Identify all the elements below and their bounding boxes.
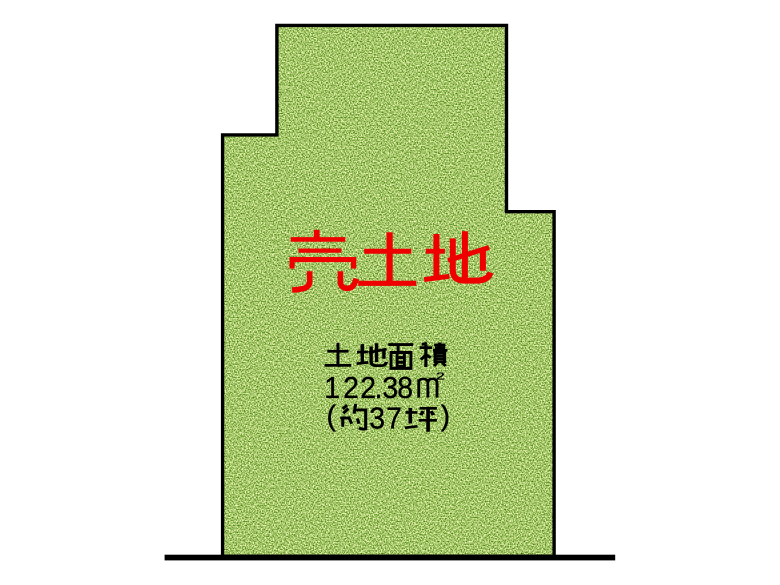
svg-text:3: 3 [369, 402, 385, 436]
svg-text:): ) [441, 401, 450, 433]
svg-text:.: . [375, 371, 383, 405]
svg-text:3: 3 [382, 371, 398, 405]
svg-text:(: ( [327, 401, 337, 433]
svg-text:2: 2 [436, 370, 445, 381]
svg-text:2: 2 [343, 371, 359, 405]
svg-text:8: 8 [397, 371, 413, 405]
svg-text:7: 7 [386, 402, 402, 436]
